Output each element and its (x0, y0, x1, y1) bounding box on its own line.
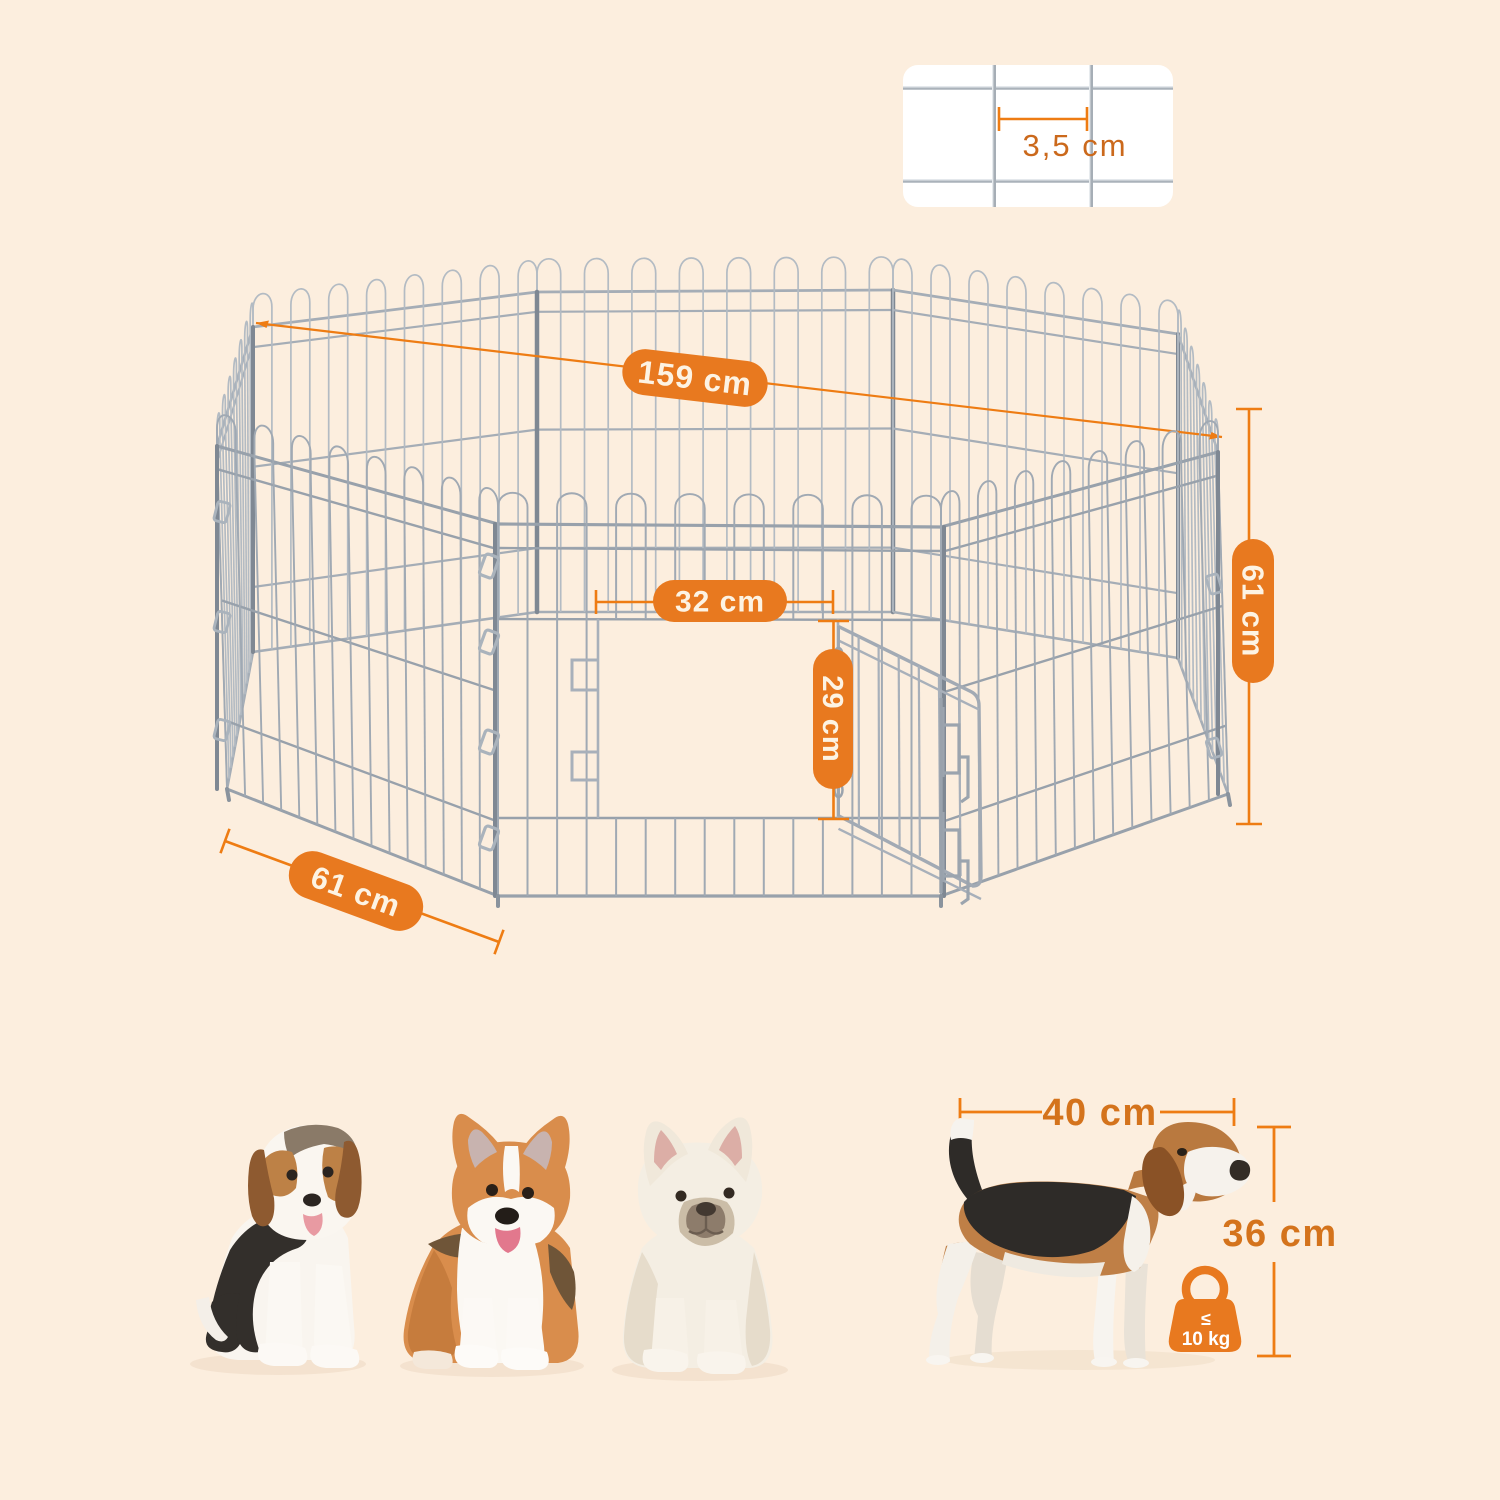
svg-text:29 cm: 29 cm (816, 675, 848, 762)
svg-text:61 cm: 61 cm (1236, 565, 1271, 658)
svg-text:36 cm: 36 cm (1222, 1213, 1337, 1255)
svg-text:3,5 cm: 3,5 cm (1022, 128, 1127, 163)
svg-text:≤: ≤ (1201, 1309, 1211, 1329)
svg-text:40 cm: 40 cm (1042, 1092, 1157, 1134)
svg-text:32 cm: 32 cm (675, 586, 765, 619)
svg-text:10 kg: 10 kg (1182, 1329, 1231, 1350)
